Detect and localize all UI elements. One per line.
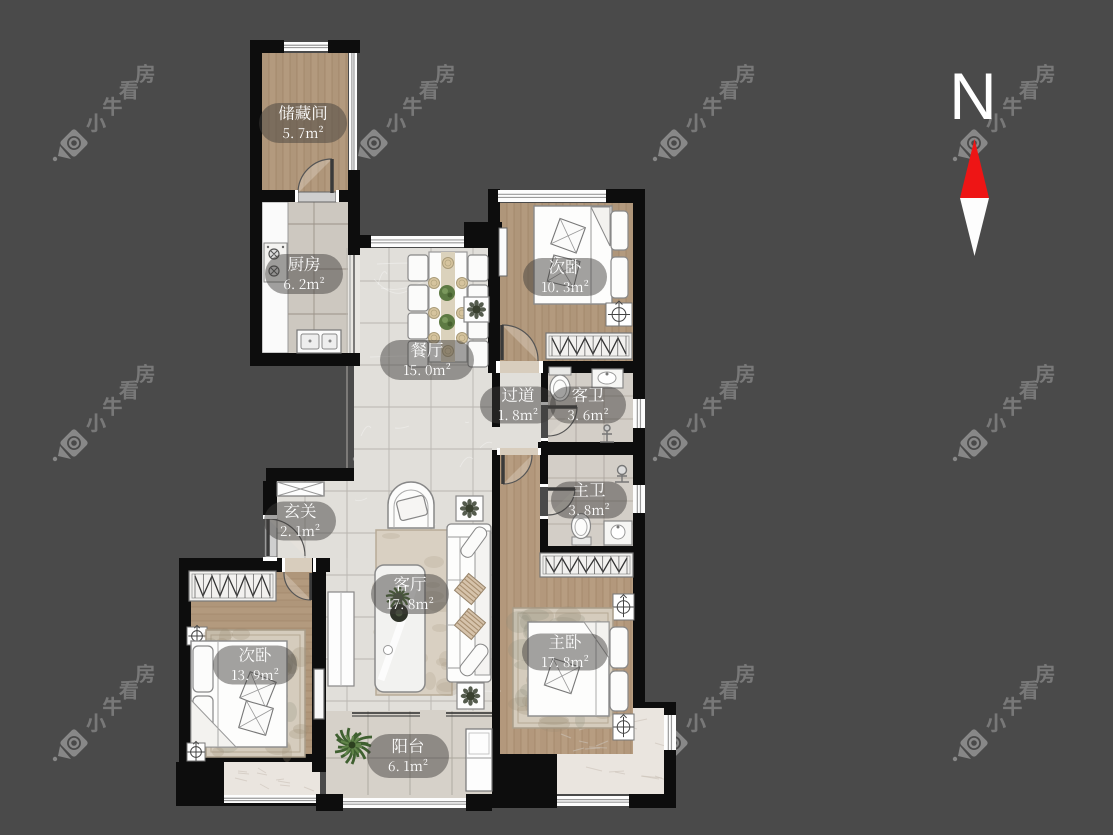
svg-text:N: N — [949, 59, 997, 133]
